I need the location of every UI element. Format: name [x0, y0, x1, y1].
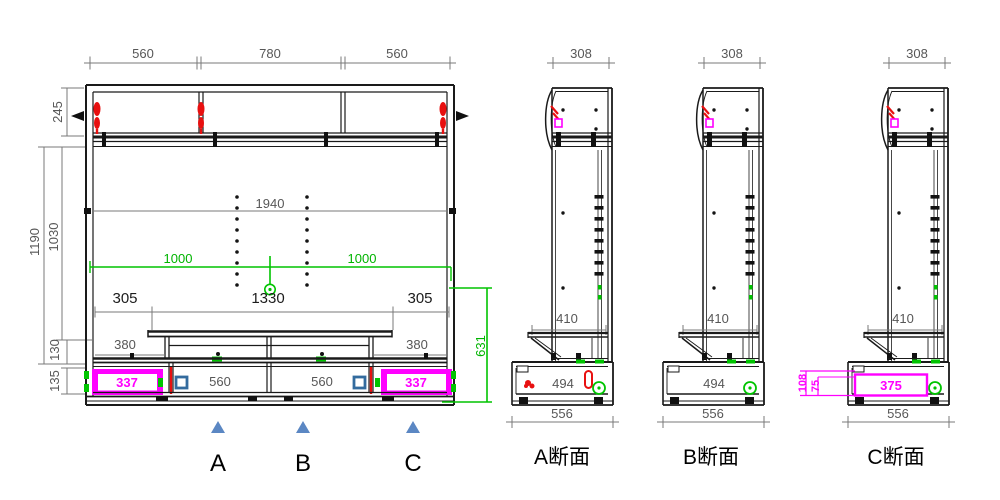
blue-hardware-square-left: [176, 377, 187, 388]
dim-green-1000-left: 1000: [164, 251, 193, 266]
section-c-title: C断面: [867, 446, 924, 469]
dim-556-c: 556: [887, 406, 909, 421]
section-c-bottom-dim: 556: [842, 406, 955, 428]
dim-drawer-75: 75: [810, 380, 822, 392]
dim-305-left: 305: [112, 290, 137, 307]
dim-410-a: 410: [556, 311, 578, 326]
section-markers: A B C: [210, 421, 422, 477]
section-c-body: 410 375: [797, 88, 949, 405]
marker-triangle-b: [296, 421, 310, 433]
pin-ladder: [595, 195, 604, 276]
dim-top-right: 560: [386, 46, 408, 61]
dim-556-a: 556: [551, 406, 573, 421]
section-a-title: A断面: [534, 446, 590, 469]
marker-label-b: B: [295, 450, 311, 477]
dim-556-b: 556: [702, 406, 724, 421]
dim-494-b: 494: [703, 376, 725, 391]
dim-410-b: 410: [707, 311, 729, 326]
dim-top-center: 780: [259, 46, 281, 61]
tv-board-dimensions: 305 1330 305: [95, 290, 449, 330]
drawer-section-highlight: 375 108 75: [797, 371, 927, 396]
section-view-c: 308 410: [797, 46, 955, 469]
section-view-a: 308 410: [506, 46, 619, 469]
magenta-fitting: [555, 119, 562, 127]
section-a-bottom-dim: 556: [506, 406, 619, 428]
top-cabinet: [93, 92, 447, 147]
section-view-b: 308 410: [657, 46, 770, 469]
front-elevation-view: 560 780 560 245 1190 1030 130 135: [27, 46, 492, 477]
red-capsule: [585, 371, 592, 388]
dim-380-right: 380: [406, 337, 428, 352]
magenta-fitting: [891, 119, 898, 127]
hinge-symbol: [94, 102, 101, 134]
dim-308-b: 308: [721, 46, 743, 61]
dim-green-1000-right: 1000: [348, 251, 377, 266]
dim-494-a: 494: [552, 376, 574, 391]
dim-side-130: 130: [47, 339, 62, 361]
section-b-title: B断面: [683, 446, 739, 469]
dim-drawer-337-right: 337: [405, 375, 427, 390]
section-c-top-dim: 308: [883, 46, 951, 69]
dim-side-1190: 1190: [27, 228, 42, 256]
dim-top-left: 560: [132, 46, 154, 61]
pin-ladder: [746, 195, 755, 276]
magenta-fitting: [706, 119, 713, 127]
base-section: 337 337 560 560: [84, 362, 456, 401]
dim-308-c: 308: [906, 46, 928, 61]
dim-bay-560-right: 560: [311, 374, 333, 389]
dim-green-631: 631: [473, 335, 488, 357]
marker-label-a: A: [210, 450, 226, 477]
dim-drawer-337-left: 337: [116, 375, 138, 390]
dim-308-a: 308: [570, 46, 592, 61]
dim-drawer-375: 375: [880, 378, 902, 393]
dim-380-left: 380: [114, 337, 136, 352]
technical-drawing-canvas: 560 780 560 245 1190 1030 130 135: [0, 0, 1000, 500]
dim-410-c: 410: [892, 311, 914, 326]
dim-bay-560-left: 560: [209, 374, 231, 389]
left-cut-arrow: [71, 111, 84, 121]
section-b-bottom-dim: 556: [657, 406, 770, 428]
tv-center-dimension: 1000 1000: [90, 251, 451, 295]
section-a-body: 410: [512, 88, 613, 405]
interior-width-dimension: 1940: [84, 196, 456, 214]
dim-side-135: 135: [47, 370, 62, 392]
hinge-symbol: [440, 102, 447, 134]
right-cut-arrow: [456, 111, 469, 121]
blue-hardware-square-right: [354, 377, 365, 388]
section-b-body: 410 494: [663, 88, 764, 405]
front-top-dimensions: 560 780 560: [84, 46, 456, 70]
pin-ladder: [931, 195, 940, 276]
furniture-drawing: 560 780 560 245 1190 1030 130 135: [0, 0, 1000, 500]
marker-triangle-c: [406, 421, 420, 433]
dim-305-right: 305: [407, 290, 432, 307]
bottom-shelf: [93, 353, 447, 363]
section-a-top-dim: 308: [547, 46, 615, 69]
dim-drawer-108: 108: [797, 374, 809, 392]
drawer-right: 337: [381, 369, 452, 395]
front-left-dimensions: 245 1190 1030 130 135: [27, 88, 92, 394]
dim-1330: 1330: [251, 290, 284, 307]
dim-side-245: 245: [50, 101, 65, 123]
marker-label-c: C: [404, 450, 421, 477]
tv-board: 380 380: [95, 330, 447, 362]
marker-triangle-a: [211, 421, 225, 433]
drawer-left: 337: [92, 369, 163, 395]
dim-interior-1940: 1940: [256, 196, 285, 211]
red-scribble: [524, 380, 535, 389]
section-b-top-dim: 308: [698, 46, 766, 69]
dim-side-1030: 1030: [46, 223, 61, 252]
